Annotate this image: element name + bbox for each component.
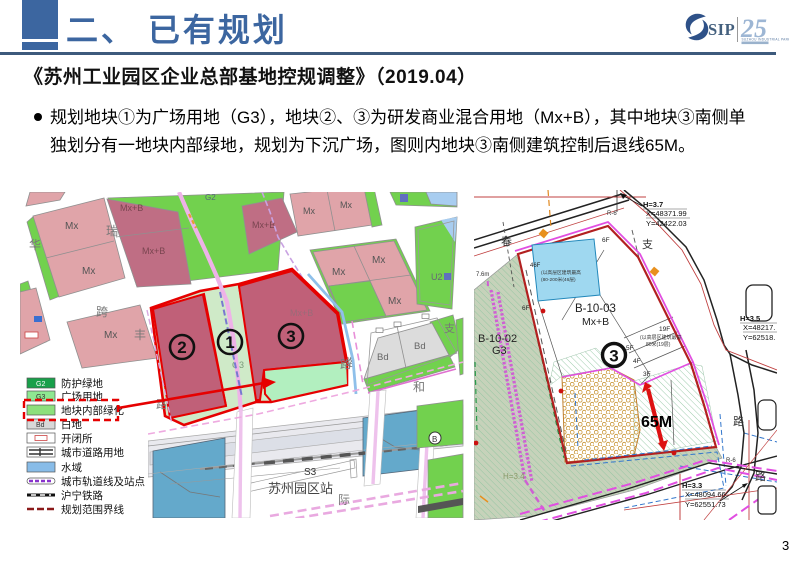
svg-text:7.6m: 7.6m — [476, 272, 489, 278]
svg-text:U2: U2 — [431, 272, 443, 282]
svg-text:规划范围界线: 规划范围界线 — [61, 503, 124, 516]
svg-text:开闭所: 开闭所 — [61, 432, 93, 445]
svg-text:X=48371.99: X=48371.99 — [646, 209, 687, 218]
svg-text:3F: 3F — [643, 371, 651, 378]
svg-text:G2: G2 — [205, 193, 216, 202]
svg-text:(80-200米(46层): (80-200米(46层) — [541, 276, 576, 283]
svg-text:6F: 6F — [522, 305, 530, 312]
svg-text:Bd: Bd — [414, 341, 426, 352]
svg-text:B-10-03: B-10-03 — [575, 303, 616, 315]
svg-text:Mx+B: Mx+B — [252, 220, 275, 230]
svg-text:B-10-02: B-10-02 — [478, 333, 517, 345]
svg-text:6F: 6F — [602, 237, 610, 244]
svg-text:城市道路用地: 城市道路用地 — [61, 446, 124, 459]
svg-text:丰: 丰 — [134, 328, 146, 342]
svg-text:SUZHOU INDUSTRIAL PARK: SUZHOU INDUSTRIAL PARK — [742, 38, 790, 42]
svg-text:防护绿地: 防护绿地 — [61, 377, 103, 390]
svg-text:Bd: Bd — [377, 352, 389, 363]
svg-text:H=3.5: H=3.5 — [740, 314, 760, 323]
svg-text:Mx: Mx — [332, 267, 345, 278]
svg-text:水域: 水域 — [61, 461, 82, 474]
svg-text:Y=42422.03: Y=42422.03 — [646, 219, 687, 228]
svg-text:S3: S3 — [304, 467, 317, 478]
svg-text:G3: G3 — [492, 345, 507, 357]
svg-text:Mx+B: Mx+B — [142, 246, 165, 256]
svg-text:R-6: R-6 — [726, 458, 736, 464]
svg-text:Mx: Mx — [388, 296, 401, 307]
svg-text:X=48094.66: X=48094.66 — [685, 490, 726, 499]
svg-text:支: 支 — [444, 322, 455, 335]
svg-text:Mx: Mx — [82, 266, 95, 277]
svg-text:Mx: Mx — [65, 221, 78, 232]
svg-text:沪宁铁路: 沪宁铁路 — [61, 489, 103, 502]
svg-text:B: B — [432, 435, 437, 444]
svg-text:支: 支 — [642, 238, 653, 251]
svg-text:春: 春 — [501, 235, 512, 248]
svg-text:(以高层区建筑最高: (以高层区建筑最高 — [640, 334, 682, 341]
svg-text:H=3.4: H=3.4 — [503, 472, 525, 481]
svg-text:跨: 跨 — [96, 305, 108, 319]
svg-text:苏州园区站: 苏州园区站 — [268, 481, 333, 496]
svg-text:3: 3 — [609, 347, 618, 366]
svg-text:路: 路 — [733, 415, 744, 428]
svg-text:Y=62551.73: Y=62551.73 — [685, 500, 726, 509]
svg-text:4F: 4F — [633, 358, 641, 365]
svg-text:SIP: SIP — [708, 20, 735, 39]
svg-text:Mx: Mx — [104, 330, 117, 341]
svg-text:Mx+B: Mx+B — [582, 316, 609, 328]
svg-text:Bd: Bd — [36, 422, 45, 429]
svg-text:1: 1 — [225, 333, 234, 352]
svg-text:G2: G2 — [36, 381, 45, 388]
svg-text:际: 际 — [338, 493, 350, 507]
svg-text:华: 华 — [29, 238, 41, 252]
svg-text:3: 3 — [286, 327, 295, 346]
svg-text:80米(19层): 80米(19层) — [646, 341, 671, 348]
svg-text:路: 路 — [340, 358, 351, 371]
svg-text:65M: 65M — [641, 414, 672, 431]
svg-text:和: 和 — [413, 380, 425, 394]
svg-text:Mx: Mx — [303, 206, 315, 216]
svg-text:R-6: R-6 — [607, 211, 617, 217]
svg-text:城市轨道线及站点: 城市轨道线及站点 — [61, 475, 145, 488]
svg-text:X=48217.: X=48217. — [743, 323, 775, 332]
svg-text:Mx: Mx — [340, 200, 352, 210]
svg-text:H=3.7: H=3.7 — [643, 200, 663, 209]
svg-text:Mx+B: Mx+B — [290, 308, 313, 318]
svg-text:地块内部绿化: 地块内部绿化 — [61, 404, 124, 417]
svg-text:(以高层区建筑最高: (以高层区建筑最高 — [541, 269, 581, 276]
svg-text:5F: 5F — [626, 345, 634, 352]
svg-text:2: 2 — [177, 338, 186, 357]
svg-text:Mx: Mx — [372, 255, 385, 266]
svg-text:19F: 19F — [659, 326, 670, 333]
svg-text:Y=62518.: Y=62518. — [743, 333, 775, 342]
svg-text:46F: 46F — [530, 263, 541, 269]
svg-text:Mx+B: Mx+B — [120, 203, 143, 213]
svg-text:H=3.3: H=3.3 — [682, 481, 702, 490]
svg-text:路: 路 — [755, 470, 766, 483]
